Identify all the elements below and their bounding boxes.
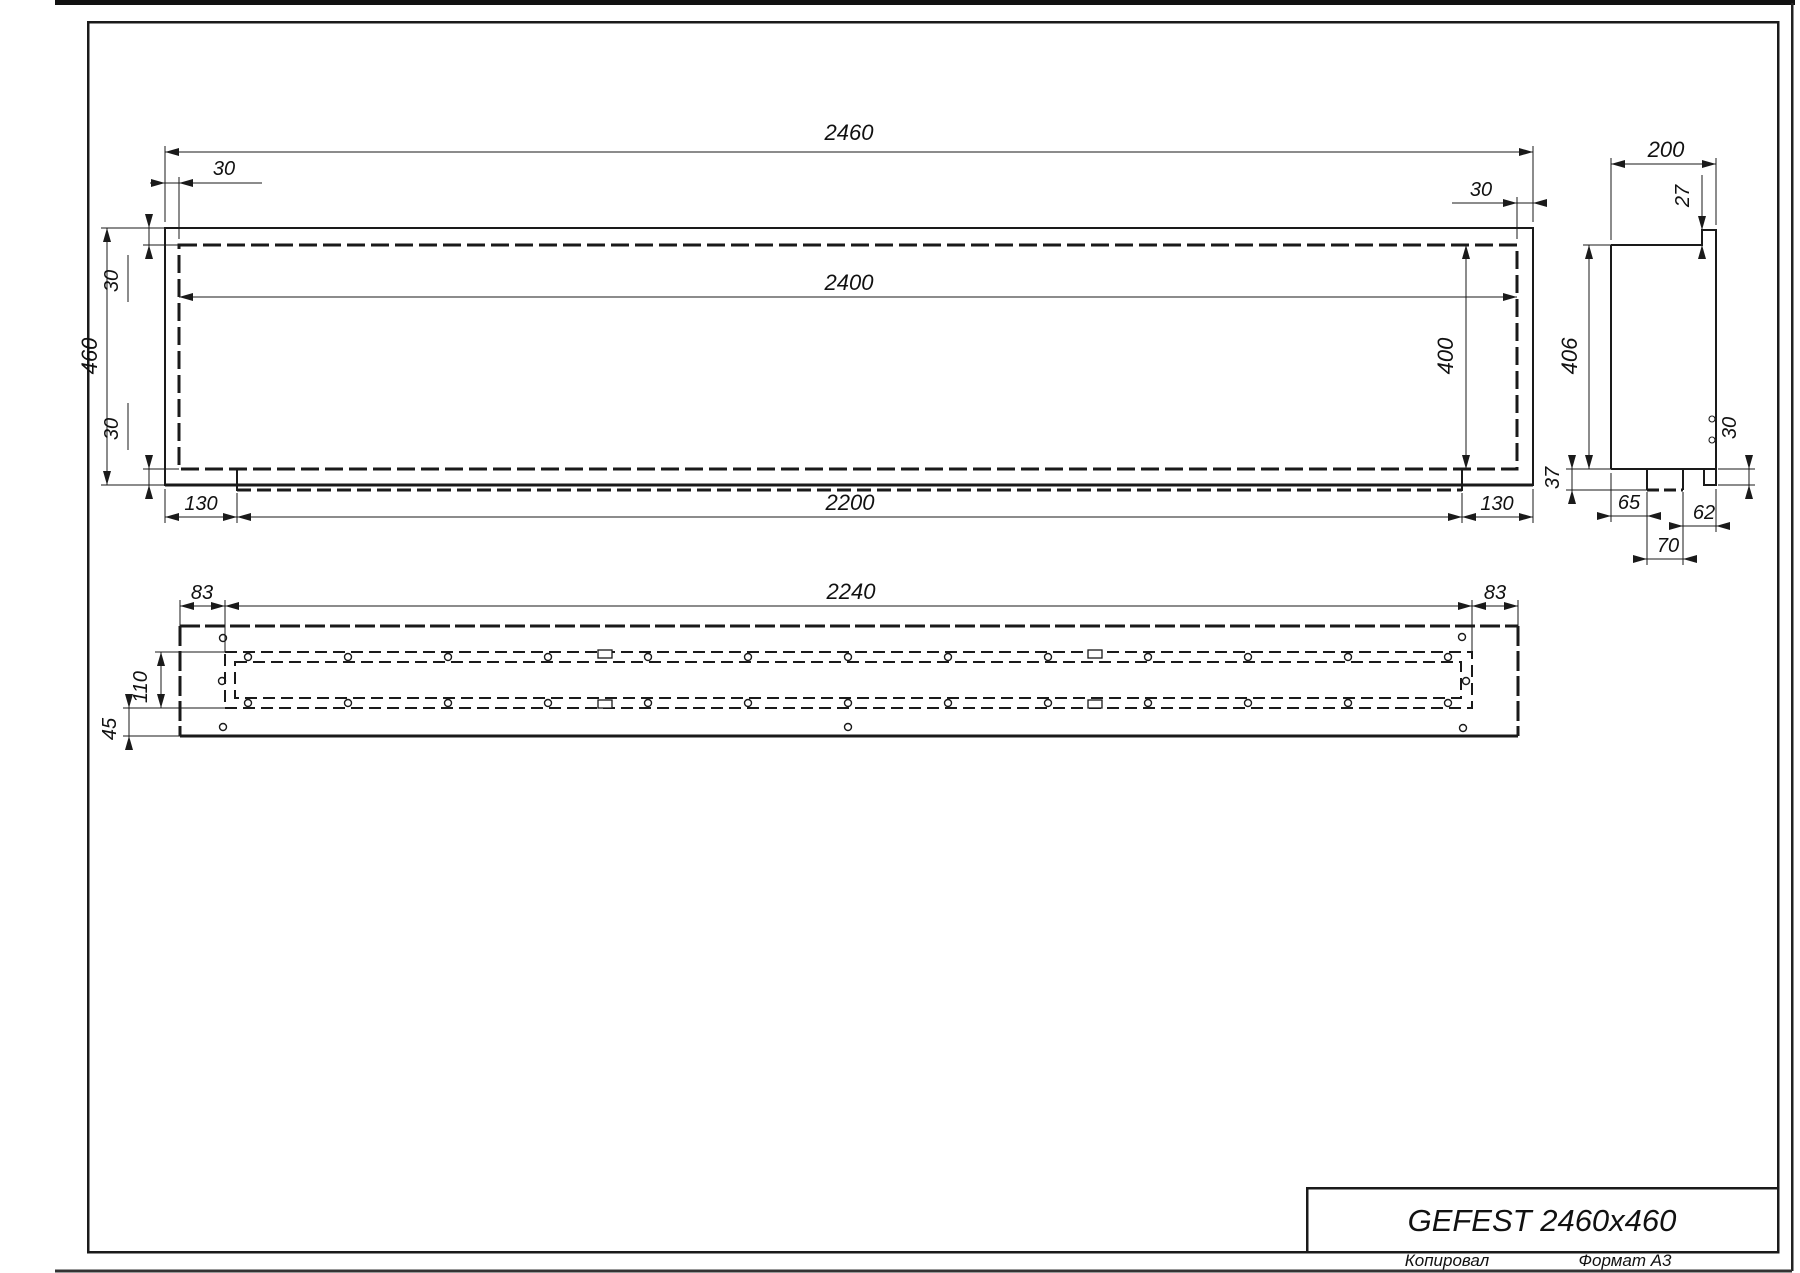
dim-front-total-width: 2460 <box>824 120 875 145</box>
bottom-view-notches <box>598 650 1102 708</box>
dim-front-left-top-offset: 30 <box>101 270 123 292</box>
dim-front-bottom-left-offset: 130 <box>184 493 217 515</box>
side-view-dimension-lines <box>1566 158 1755 565</box>
bottom-view <box>123 600 1518 750</box>
footer-copy-label: Копировал <box>1405 1251 1490 1270</box>
dim-front-inner-height: 400 <box>1433 337 1458 374</box>
front-view-outline <box>165 228 1533 485</box>
dim-front-total-height: 460 <box>77 337 102 374</box>
dim-side-foot-width: 70 <box>1657 535 1679 557</box>
dim-bottom-slot-width: 110 <box>130 671 152 703</box>
dim-side-height: 406 <box>1557 337 1582 374</box>
dim-front-inner-width: 2400 <box>824 270 875 295</box>
side-view-foot-sides <box>1647 469 1683 490</box>
sheet-edges <box>55 0 1795 1271</box>
dim-front-left-bottom-offset: 30 <box>101 418 123 440</box>
dim-bottom-left-margin: 83 <box>191 582 213 604</box>
dim-side-back-to-foot: 65 <box>1618 492 1641 514</box>
dim-bottom-right-margin: 83 <box>1484 582 1506 604</box>
side-view-outline <box>1611 230 1716 485</box>
drawing-sheet: 2460 30 30 2400 460 30 30 400 130 2200 1… <box>0 0 1800 1273</box>
dim-side-front-lip: 27 <box>1672 184 1694 208</box>
dim-side-depth: 200 <box>1647 137 1685 162</box>
side-view-hole-lower <box>1709 437 1715 443</box>
dim-side-foot-to-front: 62 <box>1693 502 1715 524</box>
dim-front-bottom-length: 2200 <box>825 490 876 515</box>
title-block: GEFEST 2460x460 <box>1307 1188 1778 1252</box>
front-view-dimension-lines <box>101 146 1541 523</box>
footer-format-label: Формат А3 <box>1578 1251 1672 1270</box>
bottom-view-screw-holes <box>219 634 1470 732</box>
front-view <box>101 146 1541 523</box>
dim-bottom-front-offset: 45 <box>99 717 121 740</box>
bottom-view-dimension-lines <box>123 600 1518 750</box>
bottom-view-outline-hidden <box>180 626 1518 736</box>
front-view-lip-sides <box>237 469 1462 491</box>
bottom-view-slot-inner <box>235 662 1461 698</box>
dim-side-foot-drop: 37 <box>1542 466 1564 489</box>
side-view-hole-upper <box>1709 416 1715 422</box>
dim-bottom-slot-length: 2240 <box>826 579 877 604</box>
drawing-frame <box>88 22 1778 1252</box>
side-view <box>1566 158 1755 565</box>
dim-side-bottom-flange: 30 <box>1719 417 1741 439</box>
sheet-top-edge <box>55 0 1795 5</box>
technical-drawing: 2460 30 30 2400 460 30 30 400 130 2200 1… <box>0 0 1800 1273</box>
dim-front-bottom-right-offset: 130 <box>1480 493 1513 515</box>
dim-front-top-left-offset: 30 <box>213 158 235 180</box>
title-block-product-name: GEFEST 2460x460 <box>1408 1203 1677 1238</box>
dim-front-top-right-offset: 30 <box>1470 179 1492 201</box>
